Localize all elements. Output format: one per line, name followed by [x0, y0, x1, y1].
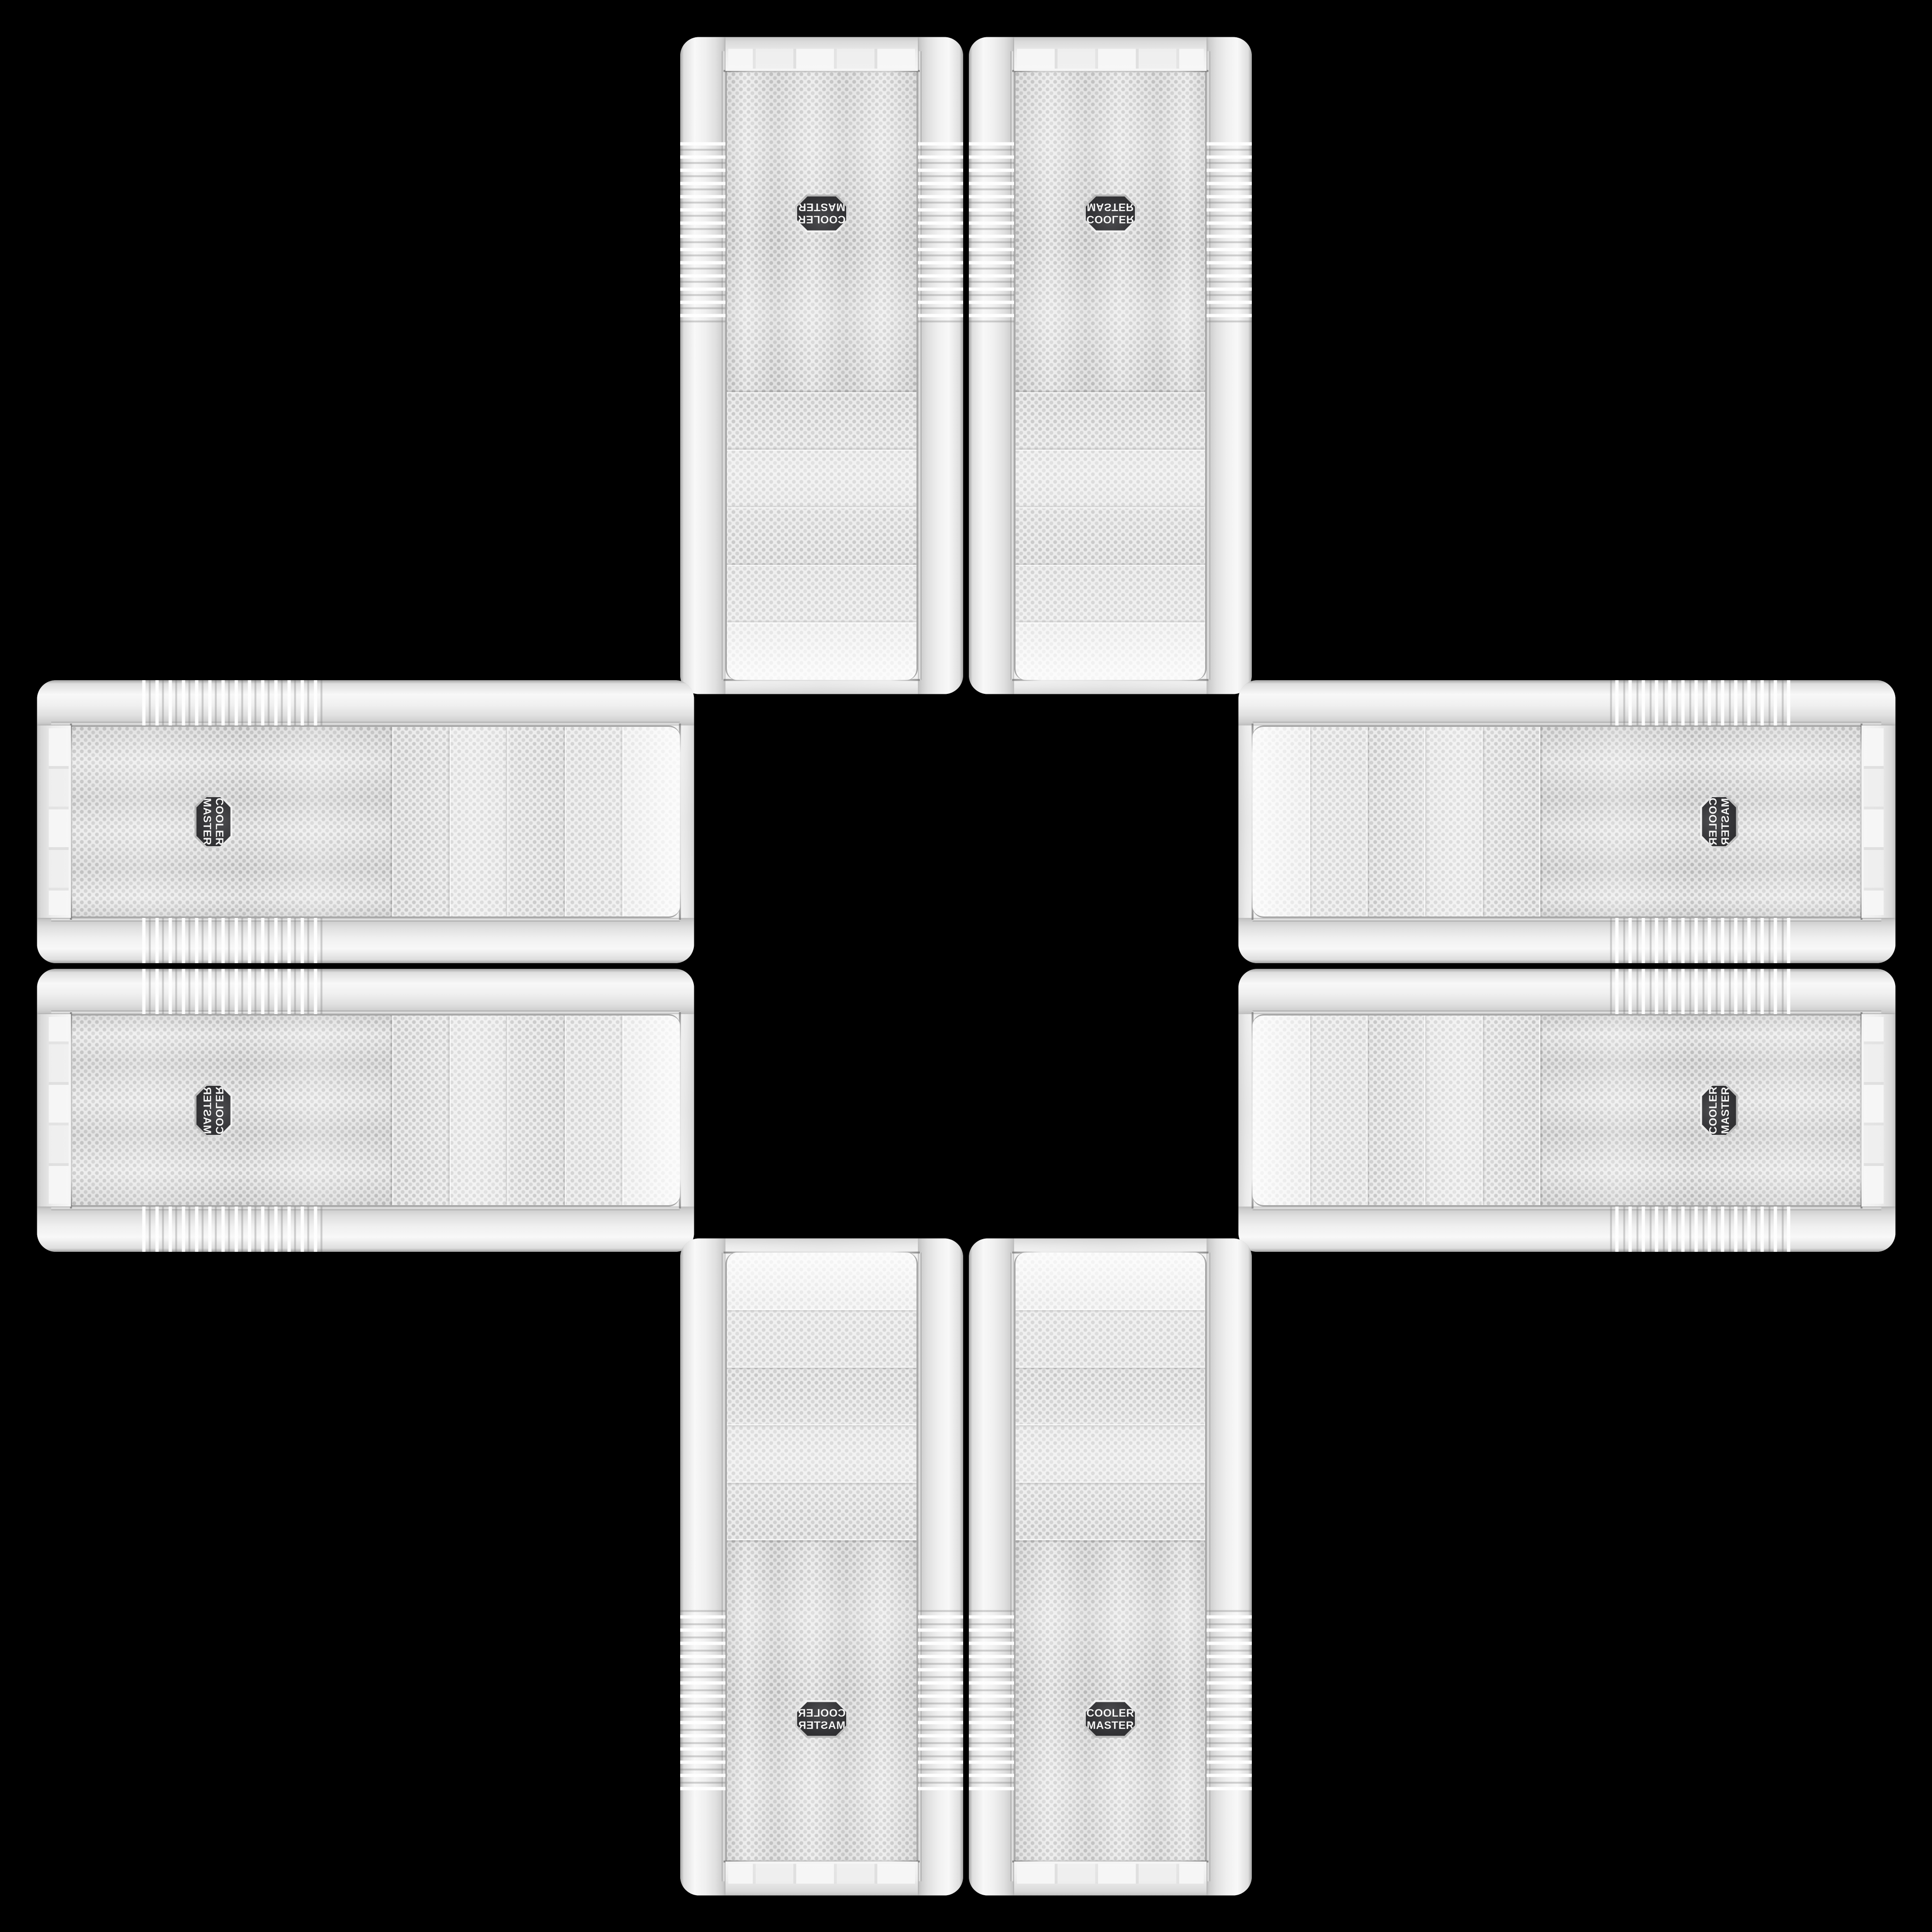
bottom-bezel [725, 37, 918, 71]
side-rail-left [1238, 680, 1895, 725]
badge-text-line2: MASTER [798, 1719, 845, 1731]
badge-face: COOLER MASTER [1702, 1086, 1736, 1135]
badge-face: COOLER MASTER [1086, 196, 1135, 230]
badge-text-line2: MASTER [1719, 798, 1731, 845]
mesh-front-panel: COOLER MASTER [1014, 1252, 1207, 1861]
bottom-bezel [37, 1014, 71, 1207]
rail-grip-ribs [139, 969, 322, 1014]
rail-grip-ribs [139, 1207, 322, 1252]
badge-text-line1: COOLER [798, 213, 845, 225]
mesh-front-panel: COOLER MASTER [1014, 71, 1207, 680]
cooler-master-badge: COOLER MASTER [194, 1084, 232, 1137]
drive-bay-section [727, 1252, 916, 1541]
drive-bay-grille [1425, 1016, 1482, 1205]
bezel-tabs [49, 728, 68, 915]
bezel-tabs [1017, 49, 1204, 68]
drive-bay-grille [1016, 392, 1205, 450]
side-rail-right [1238, 918, 1895, 963]
badge-text-line2: MASTER [201, 798, 213, 845]
mesh-front-panel: COOLER MASTER [1252, 1014, 1861, 1207]
drive-bay-section [391, 727, 680, 916]
drive-bay-grille [1252, 727, 1310, 916]
badge-text-line1: COOLER [213, 1086, 225, 1134]
pc-case: COOLER MASTER [1238, 680, 1895, 963]
side-rail-right [1207, 37, 1252, 694]
cooler-master-badge: COOLER MASTER [1084, 1700, 1137, 1738]
cooler-master-badge: COOLER MASTER [194, 795, 232, 848]
drive-bay-grille [727, 1482, 916, 1540]
cooler-master-badge: COOLER MASTER [1700, 795, 1738, 848]
pc-case: COOLER MASTER [969, 37, 1252, 694]
rail-grip-ribs [1207, 139, 1252, 322]
drive-bay-grille [727, 1367, 916, 1425]
scene: COOLER MASTER COOLER MASTER [0, 0, 1932, 1932]
rail-grip-ribs [969, 1610, 1014, 1793]
badge-text-line2: MASTER [798, 201, 845, 213]
drive-bay-section [391, 1016, 680, 1205]
rail-grip-ribs [680, 139, 725, 322]
mesh-front-panel: COOLER MASTER [725, 71, 918, 680]
case-top-right: COOLER MASTER [969, 37, 1252, 694]
side-rail-right [1207, 1238, 1252, 1895]
pc-case: COOLER MASTER [680, 1238, 963, 1895]
bottom-bezel [1861, 725, 1895, 918]
drive-bay-grille [727, 1425, 916, 1482]
badge-text-line1: COOLER [1086, 1707, 1134, 1719]
drive-bay-grille [727, 450, 916, 507]
drive-bay-grille [1482, 1016, 1540, 1205]
drive-bay-grille [565, 727, 622, 916]
bottom-bezel [1014, 37, 1207, 71]
rail-grip-ribs [1610, 680, 1793, 725]
drive-bay-grille [727, 622, 916, 680]
drive-bay-grille [1367, 727, 1425, 916]
side-rail-left [969, 37, 1014, 694]
side-rail-left [918, 1238, 963, 1895]
drive-bay-grille [1016, 450, 1205, 507]
drive-bay-grille [1016, 565, 1205, 622]
badge-text-line1: COOLER [1707, 1086, 1719, 1134]
badge-text-line2: MASTER [201, 1087, 213, 1134]
rail-grip-ribs [1610, 969, 1793, 1014]
drive-bay-grille [1425, 727, 1482, 916]
drive-bay-section [1016, 1252, 1205, 1541]
mesh-front-panel: COOLER MASTER [1252, 725, 1861, 918]
rail-grip-ribs [1610, 1207, 1793, 1252]
bezel-tabs [1017, 1864, 1204, 1883]
badge-face: COOLER MASTER [196, 797, 230, 846]
rail-grip-ribs [918, 1610, 963, 1793]
drive-bay-grille [1252, 1016, 1310, 1205]
drive-bay-grille [1016, 1367, 1205, 1425]
mesh-front-panel: COOLER MASTER [71, 1014, 680, 1207]
drive-bay-grille [450, 727, 507, 916]
drive-bay-grille [392, 1016, 450, 1205]
badge-face: COOLER MASTER [797, 1702, 846, 1736]
drive-bay-grille [622, 1016, 680, 1205]
side-rail-left [918, 37, 963, 694]
badge-text-line1: COOLER [1707, 798, 1719, 845]
badge-face: COOLER MASTER [1086, 1702, 1135, 1736]
badge-face: COOLER MASTER [196, 1086, 230, 1135]
rail-grip-ribs [680, 1610, 725, 1793]
drive-bay-section [1252, 1016, 1541, 1205]
badge-face: COOLER MASTER [797, 196, 846, 230]
drive-bay-section [1016, 391, 1205, 680]
drive-bay-grille [727, 1252, 916, 1310]
drive-bay-grille [727, 1310, 916, 1367]
mesh-front-panel: COOLER MASTER [71, 725, 680, 918]
drive-bay-grille [450, 1016, 507, 1205]
side-rail-left [37, 1207, 694, 1252]
case-left-bottom: COOLER MASTER [37, 969, 694, 1252]
pc-case: COOLER MASTER [1238, 969, 1895, 1252]
case-bottom-right: COOLER MASTER [969, 1238, 1252, 1895]
drive-bay-grille [1367, 1016, 1425, 1205]
drive-bay-grille [1016, 1252, 1205, 1310]
case-left-top: COOLER MASTER [37, 680, 694, 963]
rail-grip-ribs [1610, 918, 1793, 963]
bezel-tabs [728, 49, 915, 68]
rail-grip-ribs [139, 918, 322, 963]
drive-bay-grille [622, 727, 680, 916]
rail-grip-ribs [139, 680, 322, 725]
drive-bay-grille [1016, 1310, 1205, 1367]
drive-bay-grille [1016, 507, 1205, 565]
side-rail-right [680, 37, 725, 694]
bezel-tabs [1864, 1017, 1883, 1204]
drive-bay-grille [727, 565, 916, 622]
drive-bay-grille [1310, 727, 1367, 916]
bottom-bezel [725, 1861, 918, 1895]
badge-text-line2: MASTER [1087, 1719, 1134, 1731]
drive-bay-grille [1310, 1016, 1367, 1205]
badge-text-line1: COOLER [798, 1707, 845, 1719]
side-rail-right [37, 969, 694, 1014]
rail-grip-ribs [918, 139, 963, 322]
pc-case: COOLER MASTER [37, 680, 694, 963]
rail-grip-ribs [969, 139, 1014, 322]
drive-bay-grille [565, 1016, 622, 1205]
side-rail-right [37, 918, 694, 963]
badge-face: COOLER MASTER [1702, 797, 1736, 846]
pc-case: COOLER MASTER [969, 1238, 1252, 1895]
bezel-tabs [49, 1017, 68, 1204]
drive-bay-grille [1482, 727, 1540, 916]
bottom-bezel [37, 725, 71, 918]
drive-bay-grille [1016, 622, 1205, 680]
cooler-master-badge: COOLER MASTER [795, 194, 848, 232]
drive-bay-grille [1016, 1482, 1205, 1540]
rail-grip-ribs [1207, 1610, 1252, 1793]
side-rail-right [1238, 969, 1895, 1014]
badge-text-line2: MASTER [1087, 201, 1134, 213]
drive-bay-grille [507, 727, 565, 916]
case-top-left: COOLER MASTER [680, 37, 963, 694]
drive-bay-grille [1016, 1425, 1205, 1482]
cooler-master-badge: COOLER MASTER [1700, 1084, 1738, 1137]
drive-bay-section [727, 391, 916, 680]
cooler-master-badge: COOLER MASTER [795, 1700, 848, 1738]
side-rail-left [37, 680, 694, 725]
drive-bay-grille [507, 1016, 565, 1205]
side-rail-right [680, 1238, 725, 1895]
bezel-tabs [1864, 728, 1883, 915]
bezel-tabs [728, 1864, 915, 1883]
drive-bay-grille [727, 507, 916, 565]
bottom-bezel [1014, 1861, 1207, 1895]
badge-text-line2: MASTER [1719, 1087, 1731, 1134]
case-bottom-left: COOLER MASTER [680, 1238, 963, 1895]
pc-case: COOLER MASTER [37, 969, 694, 1252]
case-right-top: COOLER MASTER [1238, 680, 1895, 963]
bottom-bezel [1861, 1014, 1895, 1207]
drive-bay-grille [727, 392, 916, 450]
pc-case: COOLER MASTER [680, 37, 963, 694]
side-rail-left [1238, 1207, 1895, 1252]
drive-bay-grille [392, 727, 450, 916]
badge-text-line1: COOLER [1086, 213, 1134, 225]
drive-bay-section [1252, 727, 1541, 916]
badge-text-line1: COOLER [213, 798, 225, 845]
case-right-bottom: COOLER MASTER [1238, 969, 1895, 1252]
mesh-front-panel: COOLER MASTER [725, 1252, 918, 1861]
side-rail-left [969, 1238, 1014, 1895]
cooler-master-badge: COOLER MASTER [1084, 194, 1137, 232]
